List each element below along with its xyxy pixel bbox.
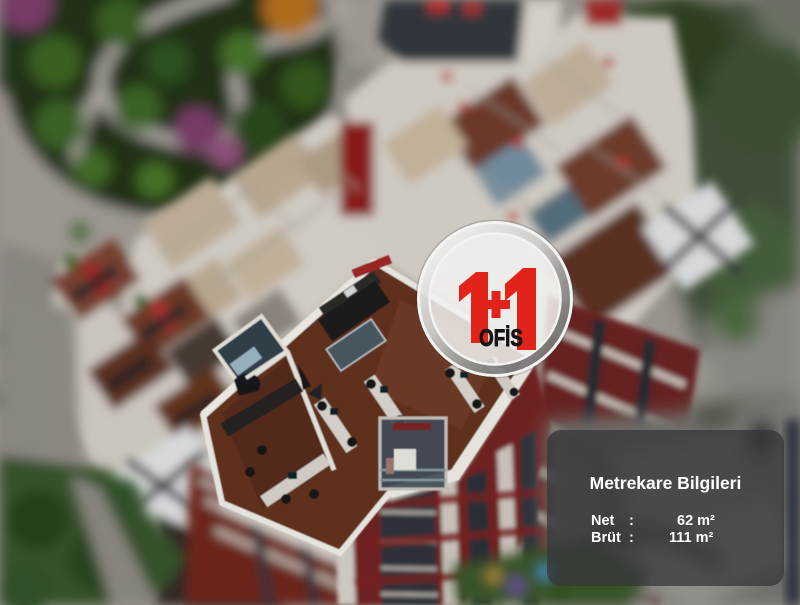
svg-text:OFİS: OFİS	[479, 325, 523, 352]
